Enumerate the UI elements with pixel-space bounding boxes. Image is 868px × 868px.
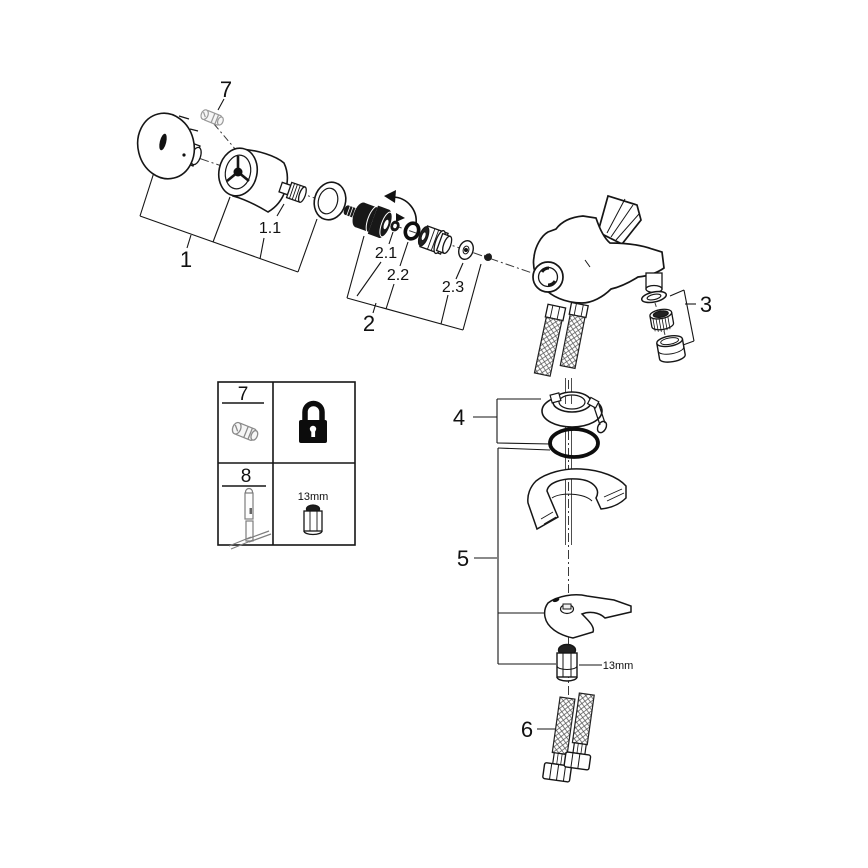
washer bbox=[456, 239, 475, 261]
label-part-2: 2 bbox=[363, 311, 375, 336]
socket-wrench-icon bbox=[304, 505, 322, 535]
mounting-plate bbox=[528, 469, 626, 529]
mounting-nut bbox=[557, 645, 577, 682]
headwork bbox=[416, 224, 455, 258]
aerator-insert bbox=[649, 308, 674, 333]
label-part-7: 7 bbox=[220, 77, 232, 102]
label-part-4: 4 bbox=[453, 405, 465, 430]
set-screw bbox=[484, 253, 492, 261]
o-ring-small bbox=[403, 221, 421, 240]
legend-number-7: 7 bbox=[238, 384, 249, 405]
base-o-ring bbox=[550, 429, 598, 457]
label-part-2-2: 2.2 bbox=[387, 267, 409, 284]
horseshoe-washer bbox=[545, 595, 631, 638]
exploded-parts-diagram: 7 1 1.1 2 2.1 2.2 2.3 3 4 5 6 7 8 13mm 1… bbox=[0, 0, 868, 868]
aerator-housing bbox=[656, 334, 686, 364]
handle-cap bbox=[131, 107, 203, 185]
label-part-3: 3 bbox=[700, 292, 712, 317]
faucet-body bbox=[533, 196, 664, 303]
nut-size-13mm: 13mm bbox=[603, 660, 634, 672]
diagram-canvas: 7 1 1.1 2 2.1 2.2 2.3 3 4 5 6 7 8 13mm 1… bbox=[0, 0, 868, 868]
grub-screw-icon bbox=[200, 109, 225, 127]
label-part-5: 5 bbox=[457, 546, 469, 571]
legend-number-8: 8 bbox=[241, 466, 252, 487]
label-part-2-1: 2.1 bbox=[375, 245, 397, 262]
cartridge bbox=[339, 195, 395, 240]
legend-box bbox=[218, 382, 355, 545]
label-part-2-3: 2.3 bbox=[442, 279, 464, 296]
label-part-6: 6 bbox=[521, 717, 533, 742]
label-part-1: 1 bbox=[180, 247, 192, 272]
handle-knob bbox=[214, 145, 287, 212]
legend-size-13mm: 13mm bbox=[298, 491, 329, 503]
label-part-1-1: 1.1 bbox=[259, 220, 281, 237]
handle-adapter bbox=[278, 180, 308, 204]
cap-ring bbox=[310, 178, 350, 223]
